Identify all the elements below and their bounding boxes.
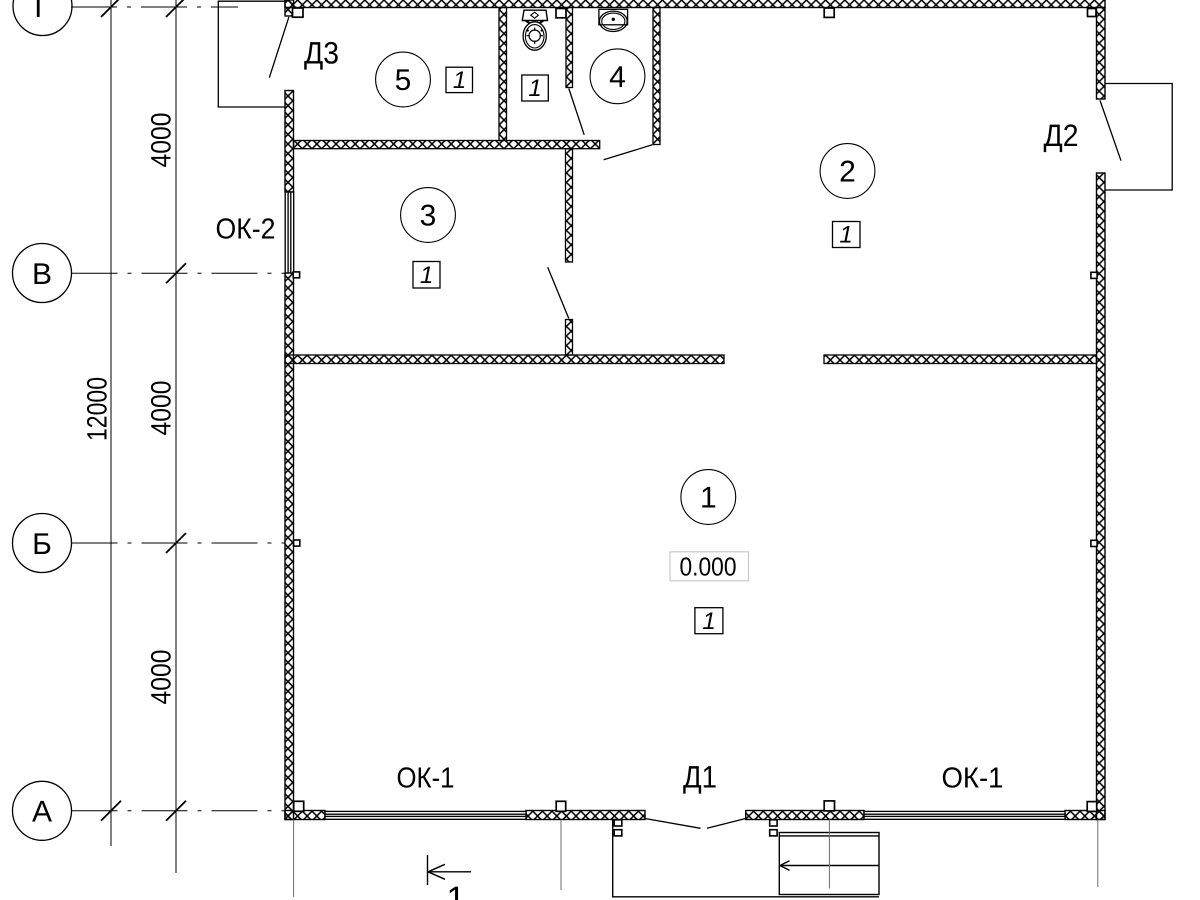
svg-text:1: 1 bbox=[447, 880, 466, 900]
svg-text:1: 1 bbox=[453, 67, 466, 94]
svg-text:Д2: Д2 bbox=[1044, 118, 1079, 153]
svg-text:4: 4 bbox=[609, 61, 626, 94]
svg-text:Г: Г bbox=[34, 0, 50, 24]
svg-text:1: 1 bbox=[420, 262, 433, 289]
svg-text:4000: 4000 bbox=[145, 113, 176, 168]
svg-text:ОК-1: ОК-1 bbox=[942, 763, 1004, 795]
svg-text:В: В bbox=[32, 258, 52, 291]
svg-text:Д3: Д3 bbox=[304, 36, 339, 71]
svg-text:5: 5 bbox=[395, 64, 412, 97]
svg-text:12000: 12000 bbox=[81, 377, 112, 441]
svg-text:1: 1 bbox=[528, 75, 541, 102]
svg-text:4000: 4000 bbox=[145, 381, 176, 436]
svg-text:1: 1 bbox=[839, 222, 852, 249]
svg-text:ОК-1: ОК-1 bbox=[397, 763, 455, 795]
svg-text:4000: 4000 bbox=[145, 650, 176, 705]
svg-text:А: А bbox=[32, 796, 52, 829]
svg-text:ОК-2: ОК-2 bbox=[216, 214, 276, 246]
svg-text:1: 1 bbox=[700, 482, 717, 515]
svg-text:1: 1 bbox=[702, 608, 715, 635]
svg-text:Б: Б bbox=[32, 528, 52, 561]
svg-text:0.000: 0.000 bbox=[680, 552, 737, 582]
svg-text:Д1: Д1 bbox=[683, 760, 717, 795]
svg-text:2: 2 bbox=[839, 156, 856, 189]
svg-text:3: 3 bbox=[420, 200, 437, 233]
